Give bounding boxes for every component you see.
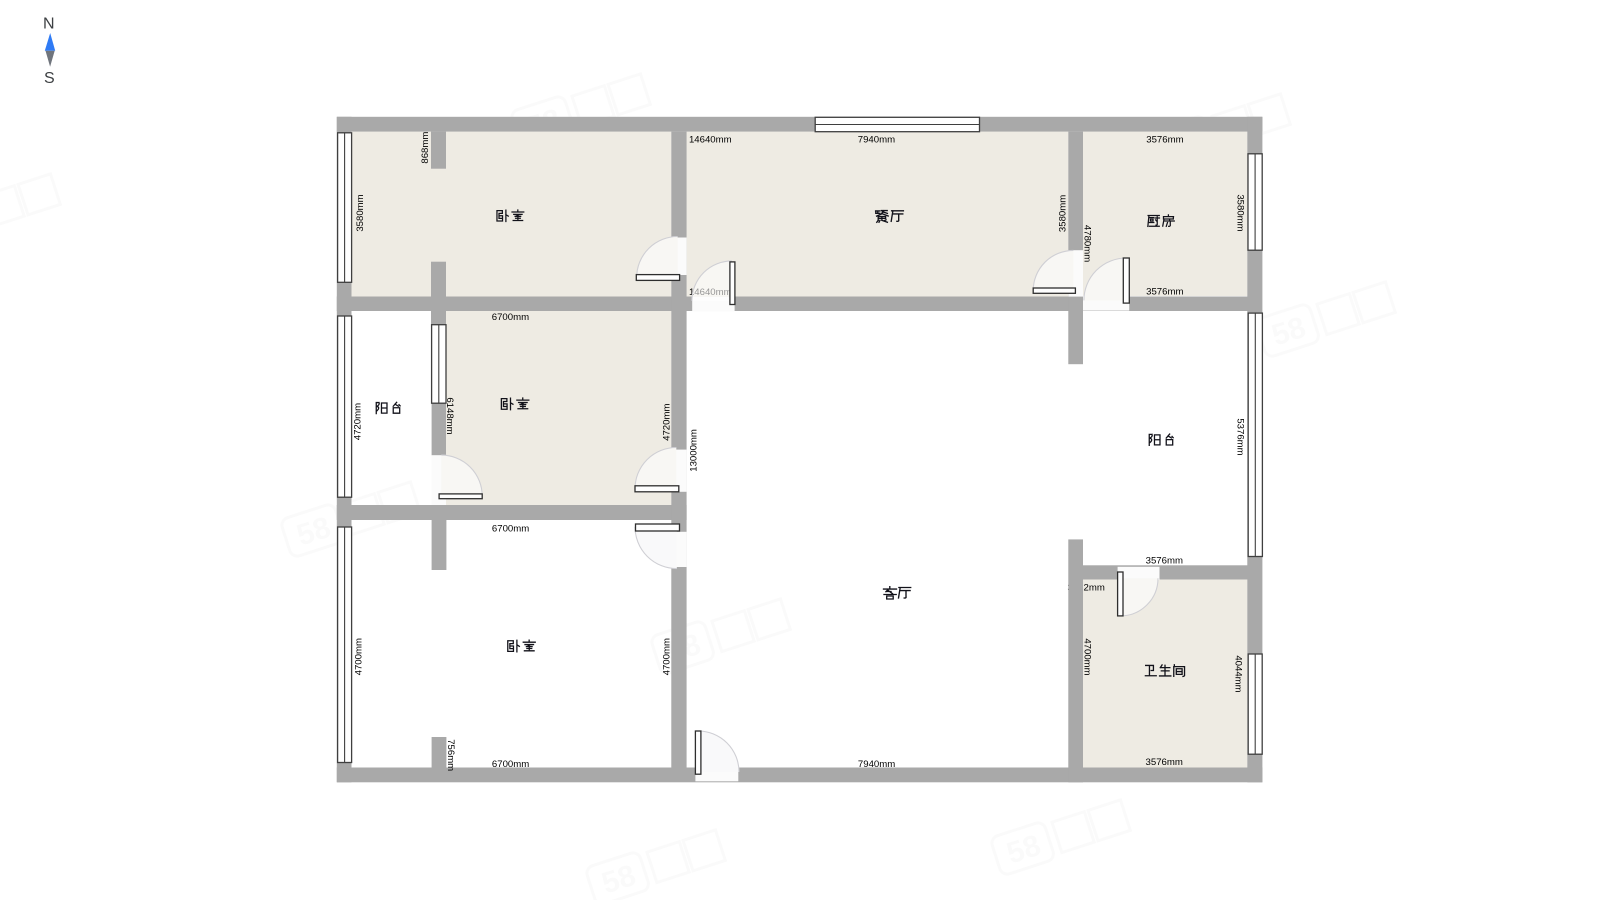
svg-text:3580mm: 3580mm [355, 194, 366, 231]
svg-text:4700mm: 4700mm [354, 638, 365, 675]
svg-text:N: N [43, 16, 55, 33]
svg-text:S: S [44, 70, 55, 87]
svg-text:3580mm: 3580mm [1235, 194, 1246, 231]
svg-text:4044mm: 4044mm [1233, 655, 1244, 692]
svg-text:3576mm: 3576mm [1146, 286, 1183, 297]
svg-text:4720mm: 4720mm [662, 404, 673, 441]
svg-text:7940mm: 7940mm [858, 759, 895, 770]
svg-text:4780mm: 4780mm [1082, 225, 1093, 262]
svg-text:5376mm: 5376mm [1234, 418, 1245, 455]
svg-text:3580mm: 3580mm [1058, 195, 1069, 232]
svg-text:6700mm: 6700mm [492, 759, 529, 770]
svg-text:7940mm: 7940mm [858, 135, 895, 146]
svg-text:13000mm: 13000mm [688, 429, 699, 472]
svg-text:4700mm: 4700mm [662, 638, 673, 675]
svg-text:3576mm: 3576mm [1146, 757, 1183, 768]
svg-text:4700mm: 4700mm [1081, 638, 1092, 675]
svg-text:3576mm: 3576mm [1146, 134, 1183, 145]
svg-text:756mm: 756mm [445, 739, 456, 771]
svg-text:6148mm: 6148mm [444, 397, 455, 434]
svg-text:6700mm: 6700mm [492, 312, 529, 323]
svg-text:3576mm: 3576mm [1146, 556, 1183, 567]
svg-text:4720mm: 4720mm [353, 403, 364, 440]
svg-text:6700mm: 6700mm [492, 524, 529, 535]
svg-text:868mm: 868mm [420, 132, 431, 164]
svg-text:14640mm: 14640mm [689, 135, 732, 146]
